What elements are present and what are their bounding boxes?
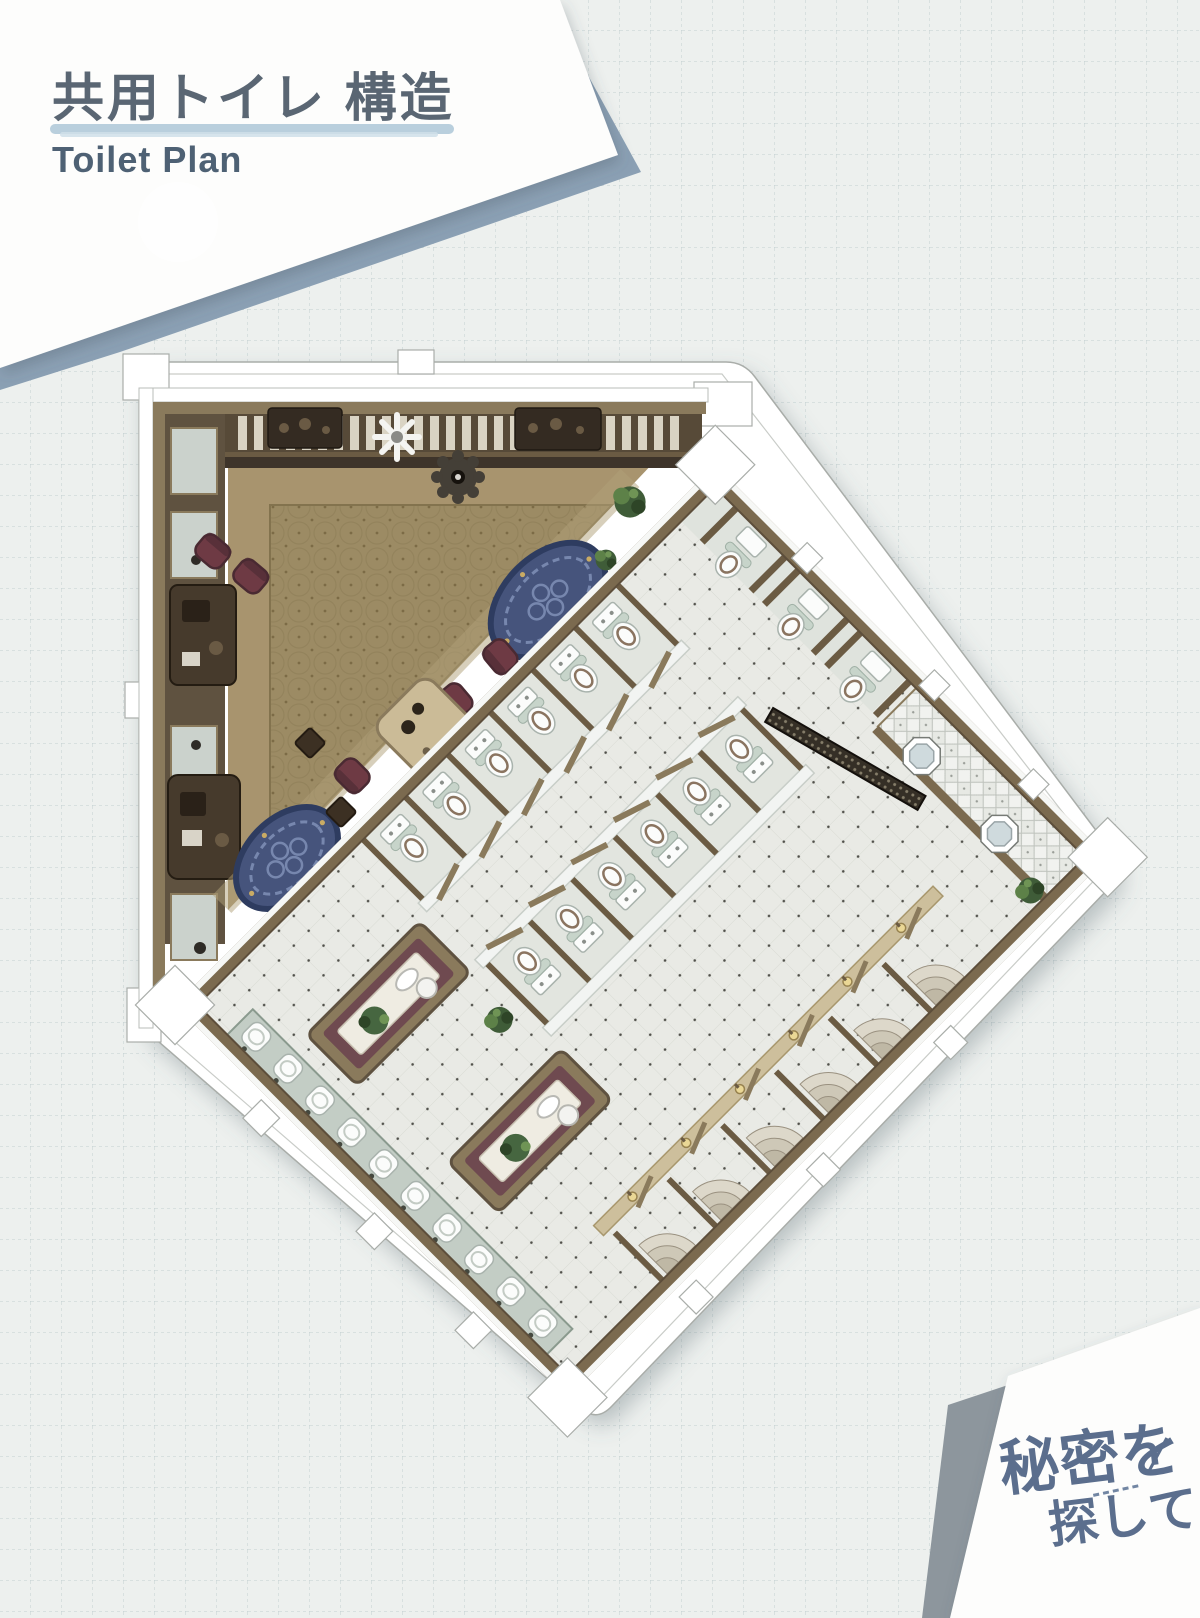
wall-console — [268, 408, 342, 448]
ceiling-fan-icon — [375, 415, 419, 459]
top-wall-ledge — [152, 388, 708, 402]
wall-mirror-panel — [171, 428, 217, 494]
window-slat — [366, 416, 375, 450]
edge-post — [398, 350, 434, 374]
window-slat — [606, 416, 615, 450]
page: 共用トイレ 構造 Toilet Plan — [0, 0, 1200, 1618]
left-wall-beam — [153, 402, 165, 992]
page-title: 共用トイレ 構造 — [52, 70, 454, 128]
window-slat — [654, 416, 663, 450]
toilet-plan-sheet: 共用トイレ 構造 Toilet Plan — [0, 0, 1200, 1618]
window-slat — [254, 416, 263, 450]
window-slat — [430, 416, 439, 450]
top-wall-beam — [158, 402, 706, 414]
left-wall-ledge — [139, 388, 153, 1028]
window-slat — [446, 416, 455, 450]
wall-console — [515, 408, 601, 450]
window-slat — [670, 416, 679, 450]
window-slat — [462, 416, 471, 450]
top-wall-trim-edge — [162, 452, 704, 457]
window-slat — [414, 416, 423, 450]
page-subtitle: Toilet Plan — [52, 139, 242, 180]
window-slat — [350, 416, 359, 450]
window-slat — [622, 416, 631, 450]
window-slat — [478, 416, 487, 450]
window-slat — [238, 416, 247, 450]
sconce-icon — [194, 942, 206, 954]
window-slat — [638, 416, 647, 450]
sconce-icon — [191, 740, 201, 750]
ceiling-ornament-icon — [431, 450, 485, 504]
vanity-console — [170, 585, 236, 685]
watermark-circle — [138, 182, 218, 262]
vanity-console — [168, 775, 240, 879]
title-underline-brush-light — [60, 132, 438, 137]
window-slat — [494, 416, 503, 450]
wall-mirror-panel — [171, 894, 217, 960]
